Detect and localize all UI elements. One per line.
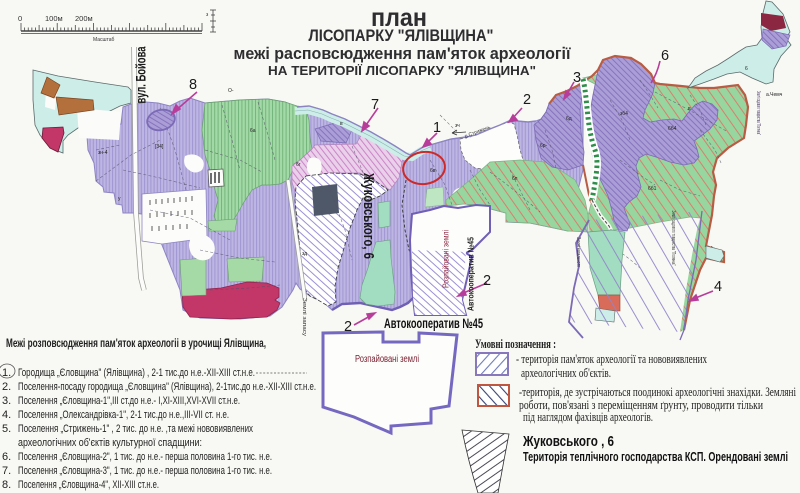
- svg-text:- територія пам'яток археологі: - територія пам'яток археології та новов…: [516, 352, 708, 366]
- svg-text:8: 8: [189, 77, 197, 93]
- svg-text:Поселення „Стрижень-1" , 2 тис: Поселення „Стрижень-1" , 2 тис. до н.е. …: [18, 423, 253, 435]
- svg-text:Землі садового товариства "Пол: Землі садового товариства "Полянка": [755, 91, 761, 135]
- svg-text:Поселення „Єловщина-1",III ст.: Поселення „Єловщина-1",III ст.до н.е.- I…: [18, 395, 240, 407]
- svg-text:4: 4: [714, 279, 722, 295]
- svg-text:Автокооператив №45: Автокооператив №45: [465, 237, 475, 311]
- svg-text:1: 1: [433, 120, 441, 136]
- svg-text:8.: 8.: [2, 479, 11, 491]
- svg-text:Територія теплічного господарс: Територія теплічного господарства КСП. О…: [523, 450, 788, 464]
- svg-text:0: 0: [18, 14, 22, 23]
- svg-text:Розпайовані землі: Розпайовані землі: [355, 354, 419, 365]
- svg-text:Городища „Єловщина" (Ялівщина): Городища „Єловщина" (Ялівщина) , 2-1 тис…: [18, 367, 255, 379]
- svg-text:-територія, де зустрічаються п: -територія, де зустрічаються поодинокі а…: [519, 385, 796, 399]
- svg-text:НА ТЕРИТОРІЇ ЛІСОПАРКУ "ЯЛІВЩИ: НА ТЕРИТОРІЇ ЛІСОПАРКУ "ЯЛІВЩИНА": [268, 63, 536, 78]
- svg-text:2: 2: [523, 92, 531, 108]
- svg-text:О-: О-: [228, 88, 234, 94]
- svg-text:Поселення „Єловщина-2", 1 тис.: Поселення „Єловщина-2", 1 тис. до н.е.- …: [18, 451, 272, 463]
- svg-text:Умовні позначення :: Умовні позначення :: [475, 337, 556, 351]
- svg-text:6р-: 6р-: [540, 143, 548, 149]
- svg-text:2: 2: [344, 319, 352, 335]
- svg-text:Поселення „Єловщина-3", 1 тис.: Поселення „Єловщина-3", 1 тис. до н.е.- …: [18, 465, 272, 477]
- svg-text:межі расповсюдження пам'яток а: межі расповсюдження пам'яток археології: [234, 45, 571, 63]
- svg-text:6: 6: [661, 48, 669, 64]
- svg-text:а.Чемч: а.Чемч: [766, 92, 783, 98]
- svg-text:зд: зд: [302, 251, 307, 257]
- svg-text:6б4: 6б4: [668, 126, 677, 132]
- svg-text:[34]: [34]: [155, 144, 164, 150]
- svg-text:Жуковського , 6: Жуковського , 6: [522, 433, 614, 450]
- svg-text:5.: 5.: [2, 423, 11, 435]
- svg-text:Розпайовані землі: Розпайовані землі: [440, 230, 450, 288]
- svg-text:6а: 6а: [250, 128, 256, 134]
- svg-text:Межі розповсюдження пам'яток а: Межі розповсюдження пам'яток археологіі …: [6, 338, 266, 350]
- svg-text:археологічних об'єктів культу: археологічних об'єктів культурної спадщи…: [18, 437, 202, 449]
- svg-text:Поселення „Олександрівка-1", 2: Поселення „Олександрівка-1", 2-1 тис.до …: [18, 409, 229, 421]
- svg-text:ЛІСОПАРКУ "ЯЛІВЩИНА": ЛІСОПАРКУ "ЯЛІВЩИНА": [309, 27, 494, 45]
- svg-text:6г: 6г: [296, 162, 301, 168]
- svg-text:вул. Бойова: вул. Бойова: [134, 46, 149, 103]
- svg-text:Землі назаленого: Землі назаленого: [575, 237, 581, 267]
- svg-text:6.: 6.: [2, 451, 11, 463]
- svg-text:3.: 3.: [2, 395, 11, 407]
- svg-text:6б1: 6б1: [648, 186, 657, 192]
- svg-text:1.: 1.: [2, 367, 11, 379]
- svg-text:4.: 4.: [2, 409, 11, 421]
- svg-text:6: 6: [745, 66, 748, 72]
- svg-text:100м: 100м: [45, 14, 63, 23]
- svg-text:під наглядом фахівців археолог: під наглядом фахівців археологів.: [523, 410, 653, 424]
- svg-text:зч: зч: [455, 123, 460, 129]
- svg-text:в: в: [340, 121, 343, 127]
- svg-text:3: 3: [573, 70, 581, 86]
- svg-text:6п: 6п: [512, 176, 518, 182]
- svg-text:7.: 7.: [2, 465, 11, 477]
- svg-text:зн-4: зн-4: [98, 150, 108, 156]
- svg-text:200м: 200м: [75, 14, 93, 23]
- svg-text:Жуковського, 6: Жуковського, 6: [360, 172, 377, 259]
- svg-text:в: в: [688, 106, 691, 112]
- svg-text:7: 7: [371, 97, 379, 113]
- svg-text:зб4: зб4: [620, 111, 628, 117]
- svg-text:6д: 6д: [566, 116, 572, 122]
- svg-text:Автокооператив №45: Автокооператив №45: [384, 316, 483, 331]
- svg-text:Поселення-посаду городища „Єло: Поселення-посаду городища „Єловщина" (Ял…: [18, 381, 316, 393]
- svg-text:2.: 2.: [2, 381, 11, 393]
- svg-text:Поселення „Єловщина-4", XII-XI: Поселення „Єловщина-4", XII-XIII ст.н.е.: [18, 479, 159, 491]
- svg-text:2: 2: [483, 273, 491, 289]
- svg-text:Масштаб: Масштаб: [93, 37, 115, 43]
- svg-text:Землі садового товариства "Пол: Землі садового товариства "Полянка": [670, 211, 676, 266]
- svg-text:6в: 6в: [430, 168, 436, 174]
- svg-text:Землі запасу: Землі запасу: [301, 298, 307, 337]
- svg-text:археологічних об'єктів.: археологічних об'єктів.: [521, 366, 611, 380]
